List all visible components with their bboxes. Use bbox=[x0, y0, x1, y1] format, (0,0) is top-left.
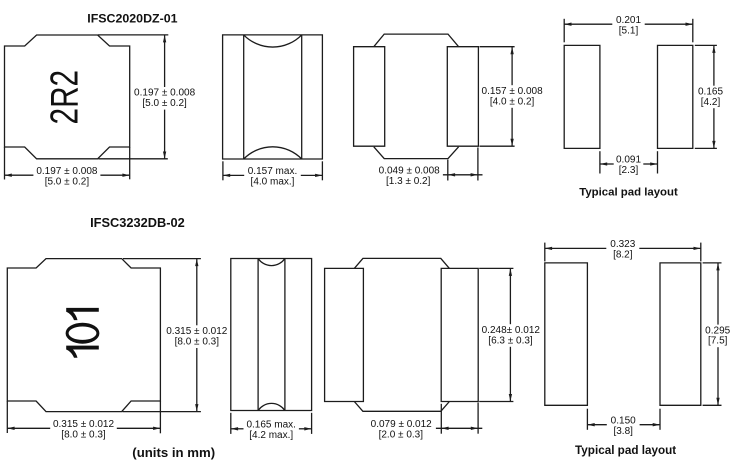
svg-text:0.150: 0.150 bbox=[611, 415, 636, 426]
svg-text:[6.3 ± 0.3]: [6.3 ± 0.3] bbox=[488, 335, 533, 346]
svg-text:0.295: 0.295 bbox=[705, 325, 730, 336]
svg-text:[8.0 ± 0.3]: [8.0 ± 0.3] bbox=[61, 429, 106, 440]
svg-text:Typical pad layout: Typical pad layout bbox=[579, 187, 678, 199]
svg-text:[2.0 ± 0.3]: [2.0 ± 0.3] bbox=[379, 429, 424, 440]
svg-text:[1.3 ± 0.2]: [1.3 ± 0.2] bbox=[386, 176, 431, 187]
svg-text:[3.8]: [3.8] bbox=[613, 426, 633, 437]
svg-text:[5.1]: [5.1] bbox=[619, 25, 639, 36]
svg-text:0.201: 0.201 bbox=[616, 15, 641, 26]
svg-text:0.315 ± 0.012: 0.315 ± 0.012 bbox=[53, 419, 115, 430]
svg-text:IFSC2020DZ-01: IFSC2020DZ-01 bbox=[87, 11, 177, 25]
svg-text:Typical pad layout: Typical pad layout bbox=[575, 444, 676, 457]
svg-text:[5.0 ± 0.2]: [5.0 ± 0.2] bbox=[45, 176, 90, 187]
svg-text:(units in mm): (units in mm) bbox=[132, 445, 215, 460]
svg-text:[4.2 max.]: [4.2 max.] bbox=[249, 430, 293, 441]
svg-text:[2.3]: [2.3] bbox=[619, 165, 639, 176]
svg-text:0.091: 0.091 bbox=[616, 155, 641, 166]
svg-text:0.165 max.: 0.165 max. bbox=[246, 420, 295, 431]
svg-text:[5.0 ± 0.2]: [5.0 ± 0.2] bbox=[142, 98, 187, 109]
svg-text:0.079 ± 0.012: 0.079 ± 0.012 bbox=[371, 419, 433, 430]
svg-text:0.157 max.: 0.157 max. bbox=[248, 166, 297, 177]
svg-text:IFSC3232DB-02: IFSC3232DB-02 bbox=[90, 215, 185, 230]
svg-text:0.323: 0.323 bbox=[610, 239, 635, 250]
svg-text:2R2: 2R2 bbox=[42, 70, 86, 125]
svg-text:[4.0 ± 0.2]: [4.0 ± 0.2] bbox=[490, 96, 535, 107]
svg-text:[8.0 ± 0.3]: [8.0 ± 0.3] bbox=[175, 336, 220, 347]
svg-text:0.157 ± 0.008: 0.157 ± 0.008 bbox=[482, 86, 544, 97]
svg-text:0.197 ± 0.008: 0.197 ± 0.008 bbox=[134, 88, 196, 99]
svg-text:[4.0 max.]: [4.0 max.] bbox=[251, 177, 295, 188]
svg-text:0.197 ± 0.008: 0.197 ± 0.008 bbox=[36, 166, 98, 177]
svg-text:0.315 ± 0.012: 0.315 ± 0.012 bbox=[166, 326, 228, 337]
svg-text:[7.5]: [7.5] bbox=[708, 336, 728, 347]
svg-text:0.165: 0.165 bbox=[698, 86, 723, 97]
svg-text:0.049 ± 0.008: 0.049 ± 0.008 bbox=[379, 166, 441, 177]
svg-text:[4.2]: [4.2] bbox=[701, 97, 721, 108]
svg-text:[8.2]: [8.2] bbox=[613, 250, 633, 261]
svg-text:0.248± 0.012: 0.248± 0.012 bbox=[482, 325, 541, 336]
